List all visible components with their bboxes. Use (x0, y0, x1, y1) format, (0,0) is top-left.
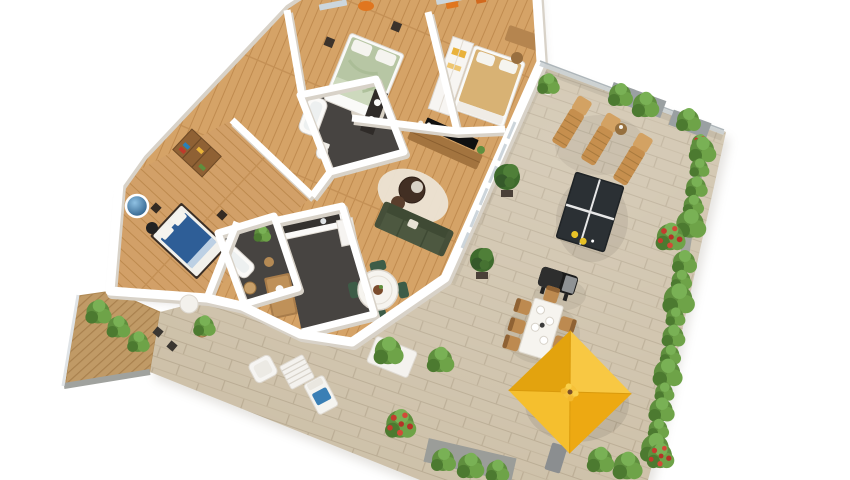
coffee-table-tray (411, 181, 423, 193)
white-pouf (180, 295, 198, 313)
floorplan-svg: 3D isometric floor plan of a three-bedro… (0, 0, 850, 480)
cypress-plant (470, 248, 494, 272)
planter-bush (608, 83, 633, 106)
cypress-pot (501, 190, 513, 197)
wicker-basket (244, 282, 256, 294)
orange-wall-art (358, 1, 374, 11)
black-desk-chair (146, 222, 158, 234)
round-blue-wall-art (126, 195, 148, 217)
centerpiece-sprig (379, 285, 383, 289)
floorplan-render: 3D isometric floor plan of a three-bedro… (0, 0, 850, 480)
cypress-pot (476, 272, 488, 279)
desk-chair (511, 52, 523, 64)
planter-bush (676, 108, 701, 131)
side-table-item (619, 125, 623, 129)
wooden-stool (264, 257, 274, 267)
cypress-plant (494, 164, 520, 190)
